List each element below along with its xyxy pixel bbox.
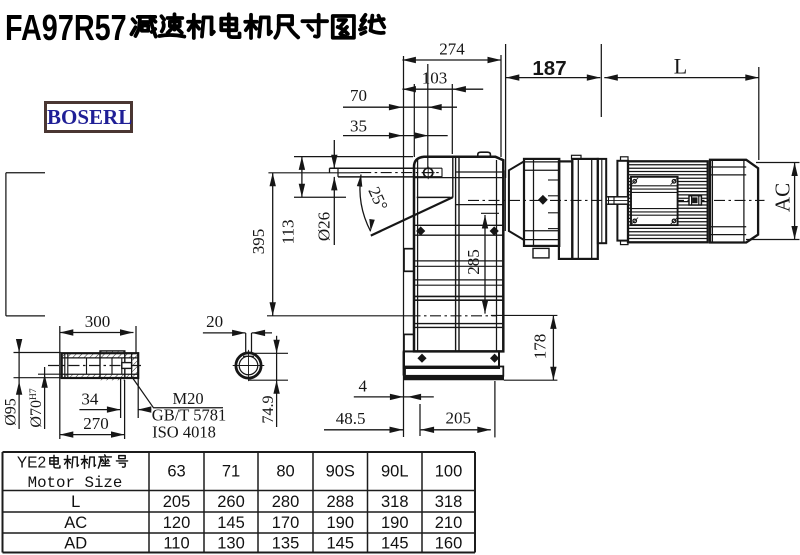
svg-text:Ø26: Ø26 (315, 212, 334, 241)
svg-text:288: 288 (326, 493, 354, 511)
svg-text:103: 103 (422, 68, 448, 87)
svg-text:205: 205 (446, 409, 472, 428)
svg-text:63: 63 (167, 463, 185, 481)
svg-text:205: 205 (163, 493, 191, 511)
svg-text:210: 210 (435, 514, 463, 532)
svg-text:34: 34 (81, 389, 99, 408)
svg-text:Motor Size: Motor Size (28, 474, 123, 492)
svg-text:90S: 90S (326, 463, 355, 481)
svg-text:260: 260 (217, 493, 245, 511)
svg-text:145: 145 (326, 534, 354, 552)
svg-text:170: 170 (272, 514, 300, 532)
svg-text:178: 178 (530, 334, 549, 360)
svg-text:130: 130 (217, 534, 245, 552)
svg-text:Ø95: Ø95 (2, 398, 19, 426)
svg-text:AC: AC (64, 514, 87, 532)
svg-text:160: 160 (435, 534, 463, 552)
svg-text:25°: 25° (364, 184, 391, 214)
svg-text:318: 318 (435, 493, 463, 511)
svg-text:35: 35 (350, 116, 367, 135)
svg-text:74.9: 74.9 (260, 396, 277, 424)
svg-text:270: 270 (83, 414, 109, 433)
svg-text:280: 280 (272, 493, 300, 511)
svg-text:ISO 4018: ISO 4018 (152, 422, 216, 441)
svg-text:48.5: 48.5 (336, 409, 366, 428)
svg-text:274: 274 (439, 40, 465, 59)
svg-text:Ø70H7: Ø70H7 (28, 388, 45, 427)
svg-text:YE2: YE2 (17, 455, 46, 472)
svg-text:285: 285 (464, 249, 483, 275)
svg-text:395: 395 (249, 229, 268, 255)
svg-text:80: 80 (276, 463, 294, 481)
svg-text:L: L (674, 54, 687, 79)
svg-text:AC: AC (771, 183, 795, 212)
svg-text:145: 145 (217, 514, 245, 532)
svg-text:187: 187 (532, 57, 566, 80)
svg-text:AD: AD (64, 534, 87, 552)
svg-text:4: 4 (359, 377, 368, 396)
svg-text:300: 300 (85, 312, 111, 331)
svg-text:113: 113 (279, 219, 298, 244)
svg-text:70: 70 (350, 86, 367, 105)
svg-text:L: L (71, 493, 80, 511)
svg-text:110: 110 (163, 534, 189, 552)
svg-text:20: 20 (206, 312, 223, 331)
svg-text:318: 318 (381, 493, 409, 511)
svg-text:135: 135 (272, 534, 300, 552)
svg-text:100: 100 (435, 463, 463, 481)
svg-text:190: 190 (381, 514, 409, 532)
svg-text:120: 120 (163, 514, 191, 532)
svg-text:90L: 90L (381, 463, 409, 481)
svg-text:145: 145 (381, 534, 409, 552)
svg-text:71: 71 (222, 463, 240, 481)
svg-text:190: 190 (326, 514, 354, 532)
